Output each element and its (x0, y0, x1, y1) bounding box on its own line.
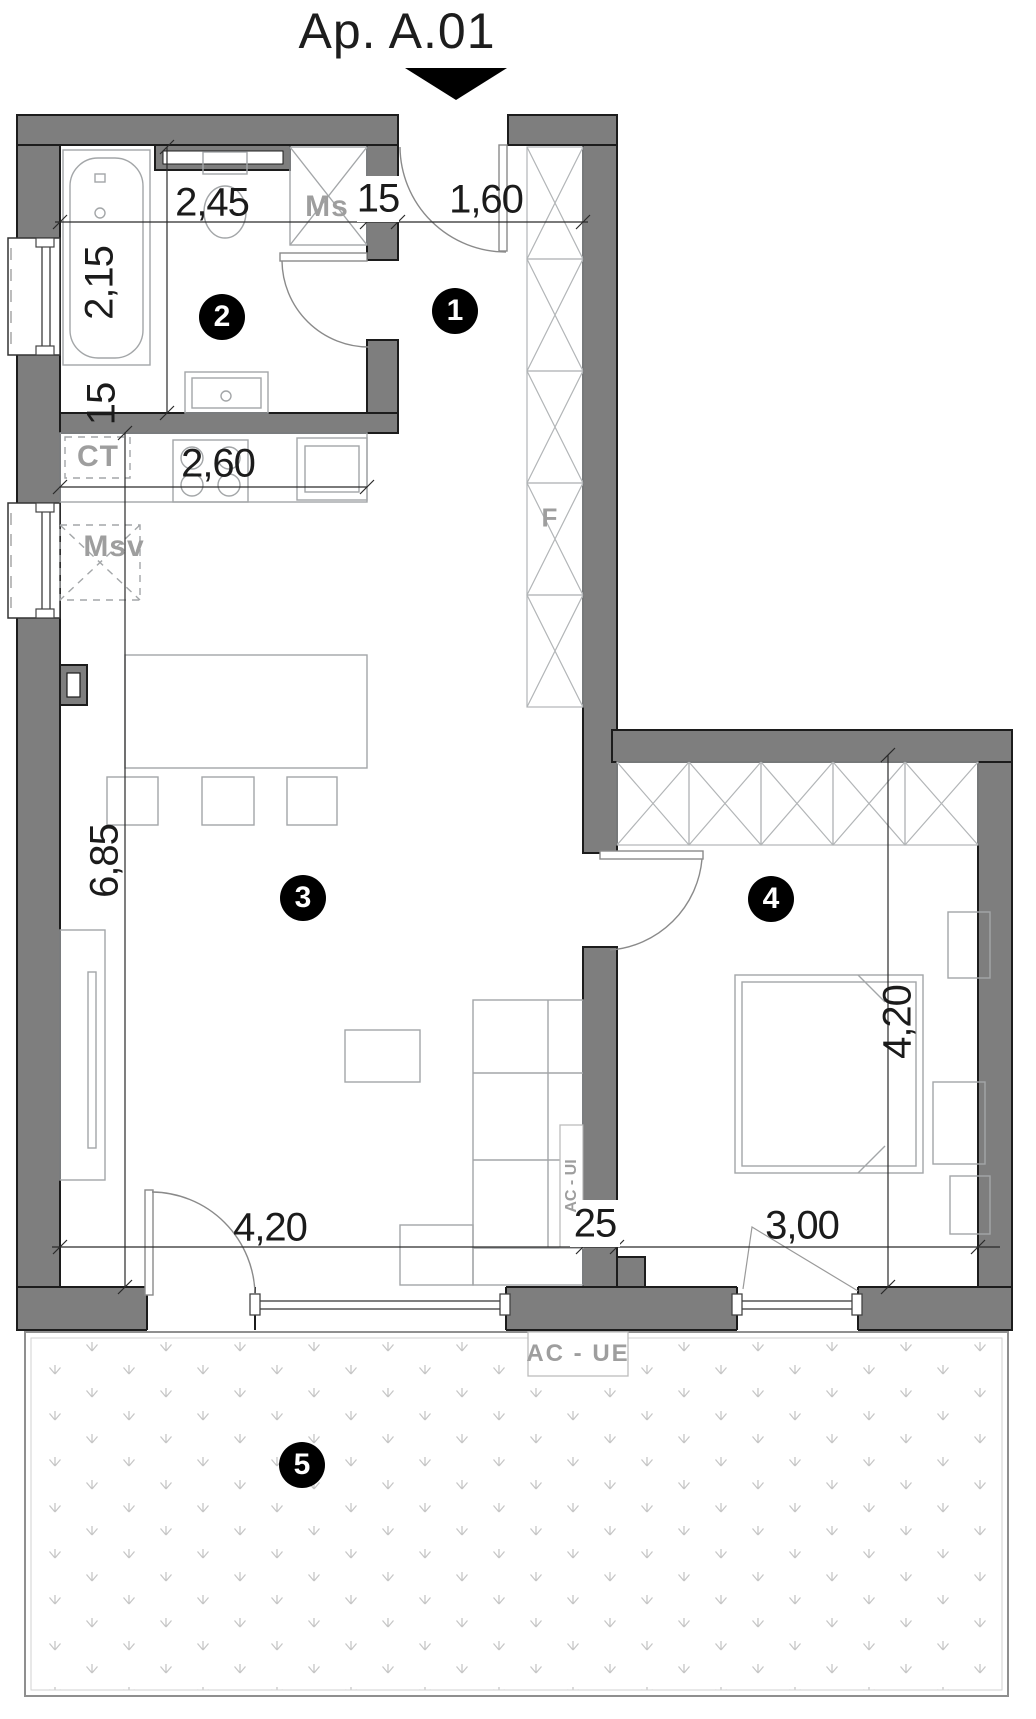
dim-bedroom-width: 3,00 (765, 1204, 839, 1249)
dim-kitchen-width: 2,60 (181, 442, 255, 487)
floorplan-page: Ap. A.01 1 2 3 4 5 2,45 15 1,60 2,15 15 … (0, 0, 1036, 1719)
label-ac-indoor: AC - UI (563, 1159, 581, 1212)
dim-bedroom-length: 4,20 (876, 985, 921, 1059)
doors (145, 145, 858, 1295)
label-boiler: CT (77, 440, 119, 474)
walls (17, 115, 1012, 1330)
label-washing-machine: Ms (305, 190, 349, 224)
dim-bathroom-width: 2,45 (175, 181, 249, 226)
dim-living-length: 6,85 (83, 824, 128, 898)
label-ac-outdoor: AC - UE (526, 1340, 629, 1368)
bedroom-wardrobe (617, 762, 978, 845)
dim-kitchen-wall: 15 (80, 383, 125, 426)
room-badge-3: 3 (280, 875, 326, 921)
terrace-area (25, 1332, 1008, 1696)
label-dishwasher: Msv (83, 530, 144, 564)
bottom-wall-openings (147, 1286, 862, 1331)
room-badge-1: 1 (432, 288, 478, 334)
dim-living-width: 4,20 (233, 1206, 307, 1251)
shaft-f-column (527, 147, 583, 707)
label-shaft-f: F (542, 503, 559, 534)
dim-bathroom-length: 2,15 (78, 246, 123, 320)
apartment-title: Ap. A.01 (298, 2, 495, 60)
room-badge-5: 5 (279, 1442, 325, 1488)
entrance-arrow-icon (405, 68, 507, 100)
dimension-lines (52, 140, 1000, 1294)
dim-bathroom-wall: 15 (357, 177, 400, 222)
room-badge-4: 4 (748, 876, 794, 922)
floorplan-drawing (0, 0, 1036, 1719)
room-badge-2: 2 (199, 294, 245, 340)
shelf-inset (163, 151, 283, 164)
dim-hallway-width: 1,60 (449, 178, 523, 223)
pillar-inset (67, 673, 80, 697)
